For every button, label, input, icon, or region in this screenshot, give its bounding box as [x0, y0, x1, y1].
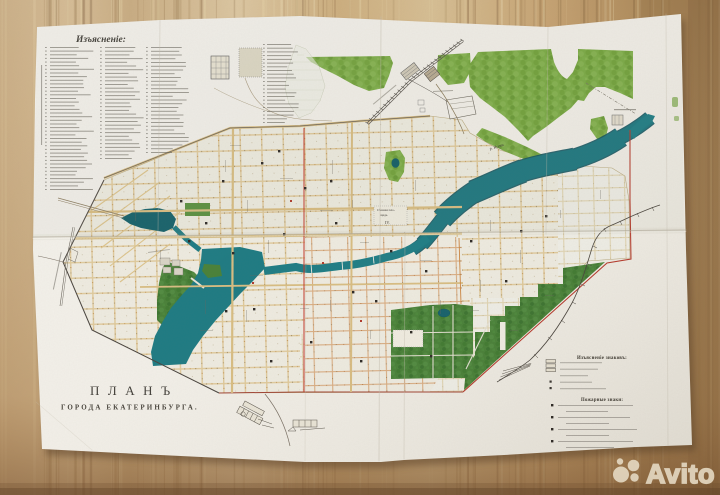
svg-text:Avito: Avito [646, 459, 715, 489]
